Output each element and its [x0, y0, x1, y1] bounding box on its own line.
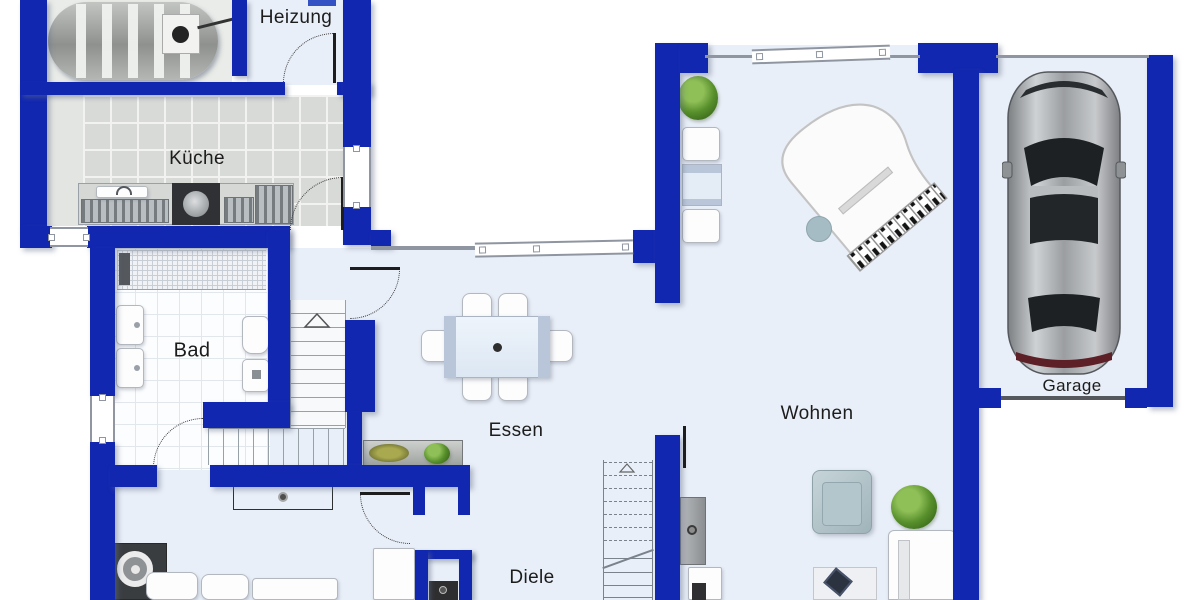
door-leaf: [360, 492, 410, 495]
dining-chair: [462, 374, 492, 401]
room-label-wohnen: Wohnen: [781, 403, 854, 425]
wall: [20, 82, 285, 95]
wall: [371, 230, 391, 247]
bath-sink-2-drain: [134, 365, 140, 371]
kitchen-faucet: [116, 186, 132, 195]
room-label-diele: Diele: [509, 567, 554, 589]
bed-pillow: [146, 572, 198, 600]
bidet-drain: [252, 370, 261, 379]
washing-machine-dot: [131, 565, 140, 574]
room-label-kueche: Küche: [169, 148, 225, 170]
armchair: [682, 209, 720, 243]
stair-tread: [604, 488, 652, 489]
wall: [953, 70, 979, 600]
potted-plant: [678, 76, 718, 120]
door-leaf: [350, 267, 400, 270]
door-leaf: [333, 33, 336, 83]
hall-dresser-item: [692, 583, 706, 600]
wall: [308, 0, 336, 6]
wall: [347, 412, 362, 468]
kitchen-cabinet-mid: [224, 197, 254, 223]
kitchen-cabinet-right: [255, 185, 293, 224]
wall: [413, 487, 425, 515]
window: [343, 147, 371, 207]
dining-chair: [547, 330, 573, 362]
window: [50, 227, 88, 247]
cellar-stair-rail-left: [603, 460, 604, 600]
stair-tread: [604, 597, 652, 598]
wall: [633, 230, 657, 263]
armchair-lounge-seat: [822, 482, 862, 526]
floor-plan: Heizung Küche Bad Essen Wohnen Diele Gar…: [0, 0, 1200, 600]
bed-pillow: [201, 574, 249, 600]
room-label-bad: Bad: [174, 340, 211, 363]
stair-tread: [604, 475, 652, 476]
dining-table-center-knob: [493, 343, 502, 352]
shower-fixture-icon: [119, 253, 130, 285]
wall: [680, 43, 708, 73]
wall: [918, 43, 998, 73]
wall: [415, 550, 428, 600]
wall: [268, 230, 290, 410]
staircase-lower-flight: [208, 428, 345, 465]
dining-table-rail-left: [444, 316, 456, 378]
hall-appliance-knob: [439, 586, 447, 594]
stair-tread: [604, 527, 652, 528]
kitchen-stove-pot: [183, 191, 209, 217]
door-leaf: [683, 426, 686, 468]
grass-plant: [369, 444, 409, 462]
wall: [203, 402, 290, 428]
wall: [458, 487, 470, 515]
sofa-armrest: [898, 540, 910, 600]
cellar-stair-rail-right: [652, 460, 653, 600]
toilet: [242, 316, 269, 354]
wall: [87, 226, 290, 248]
stair-tread: [604, 514, 652, 515]
low-wall-line: [371, 246, 475, 250]
stair-tread: [604, 501, 652, 502]
stair-tread: [604, 585, 652, 586]
piano-stool: [806, 216, 832, 242]
potted-plant-small: [424, 443, 450, 464]
staircase-up-arrow-icon: [303, 312, 331, 329]
room-label-essen: Essen: [489, 420, 544, 442]
stair-tread: [604, 572, 652, 573]
wall: [459, 550, 472, 600]
room-label-garage: Garage: [1038, 376, 1105, 396]
armchair: [682, 127, 720, 161]
garage-door: [1001, 396, 1125, 400]
bath-sink-1-drain: [134, 322, 140, 328]
stair-up-arrow-small-icon: [618, 463, 636, 473]
wall: [655, 43, 680, 303]
wall: [90, 248, 115, 396]
side-table: [682, 164, 722, 206]
wall: [210, 465, 470, 487]
dining-chair: [498, 374, 528, 401]
wall: [1125, 388, 1147, 408]
oil-tank-cap-lid: [172, 26, 189, 43]
potted-plant: [891, 485, 937, 529]
wall: [1147, 55, 1173, 407]
kitchen-cabinet-left: [81, 199, 169, 223]
wall: [110, 465, 157, 487]
wall: [979, 388, 1001, 408]
wall: [655, 435, 680, 600]
window: [90, 396, 115, 442]
garage-roof-line: [996, 55, 1149, 58]
shower: [117, 250, 266, 290]
sideboard-knob: [278, 492, 288, 502]
tall-cabinet-knob: [687, 525, 697, 535]
wall: [232, 0, 247, 76]
hall-cabinet: [373, 548, 415, 600]
wall: [20, 0, 47, 230]
room-label-heizung: Heizung: [260, 7, 333, 29]
wall: [345, 320, 375, 412]
stair-tread: [604, 540, 652, 541]
car: [1002, 68, 1126, 380]
bed-body: [252, 578, 338, 600]
dining-table-rail-right: [538, 316, 550, 378]
